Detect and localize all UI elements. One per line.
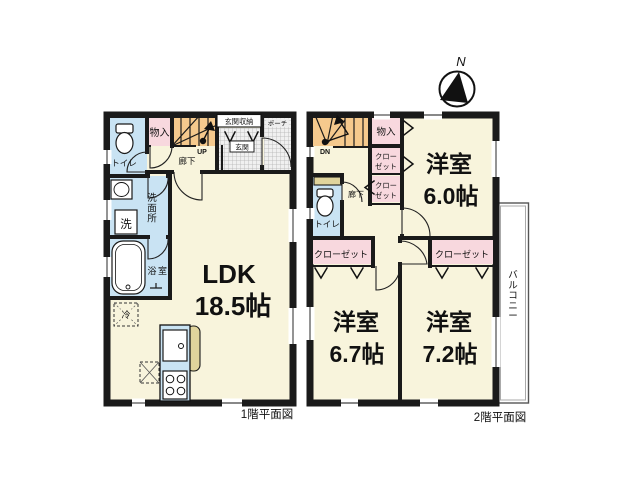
f2-closet1-label-2: ゼット xyxy=(375,162,397,171)
toilet-icon xyxy=(116,124,133,154)
f1-ldk-name: LDK xyxy=(202,259,256,289)
first-floor-plan: 物入 UP 玄関収納 玄関 ポーチ 廊下 トイレ 洗面所 浴室 洗 冷 LDK … xyxy=(103,115,298,422)
f2-closet-wide-right-label: クローゼット xyxy=(435,249,489,260)
f2-dn-label: DN xyxy=(320,149,330,156)
f2-toilet-label: トイレ xyxy=(314,219,340,229)
f2-room-a-name: 洋室 xyxy=(426,151,472,177)
compass-north-label: N xyxy=(456,54,466,69)
f1-entrance-storage-label: 玄関収納 xyxy=(225,117,254,126)
f2-closet1-label-1: クロー xyxy=(375,152,397,161)
f1-washroom-label: 洗面所 xyxy=(147,192,157,225)
f2-room-b-name: 洋室 xyxy=(333,309,379,335)
f1-entrance-label: 玄関 xyxy=(235,143,249,152)
f1-storage-label: 物入 xyxy=(150,126,170,139)
second-floor-plan: DN 物入 クロー ゼット クロー ゼット 洋室 6.0帖 トイレ 廊下 クロー… xyxy=(306,111,529,425)
f2-caption: 2階平面図 xyxy=(474,410,526,424)
f1-caption: 1階平面図 xyxy=(241,407,293,421)
f2-room-c-name: 洋室 xyxy=(426,309,472,335)
floorplan-screenshot: N xyxy=(0,0,636,480)
f1-bath-label: 浴室 xyxy=(147,265,168,276)
f1-fridge-label: 冷 xyxy=(121,309,130,320)
f1-up-label: UP xyxy=(197,149,207,156)
stove-icon xyxy=(163,371,187,399)
f1-ldk-size: 18.5帖 xyxy=(195,291,272,321)
f1-toilet-label: トイレ xyxy=(111,158,137,168)
f2-hallway-label: 廊下 xyxy=(348,189,364,199)
f2-room-a-size: 6.0帖 xyxy=(424,183,479,209)
f1-porch-label: ポーチ xyxy=(268,120,288,128)
f2-toilet-shelf xyxy=(314,177,341,185)
f2-storage-label: 物入 xyxy=(376,126,396,138)
vanity-sink-icon xyxy=(111,180,132,199)
f2-closet2-label-1: クロー xyxy=(375,181,397,190)
f2-closet2-label-2: ゼット xyxy=(375,191,397,200)
f2-balcony-label: バルコニー xyxy=(508,270,518,322)
floorplan-canvas: N xyxy=(0,0,636,480)
f2-room-b-size: 6.7帖 xyxy=(330,341,385,367)
f2-closet-wide-left-label: クローゼット xyxy=(314,249,368,260)
f2-room-c-size: 7.2帖 xyxy=(423,341,478,367)
f1-laundry-label: 洗 xyxy=(120,218,132,231)
f1-hallway-label: 廊下 xyxy=(178,156,196,166)
compass: N xyxy=(440,54,475,107)
toilet-icon xyxy=(317,189,333,216)
